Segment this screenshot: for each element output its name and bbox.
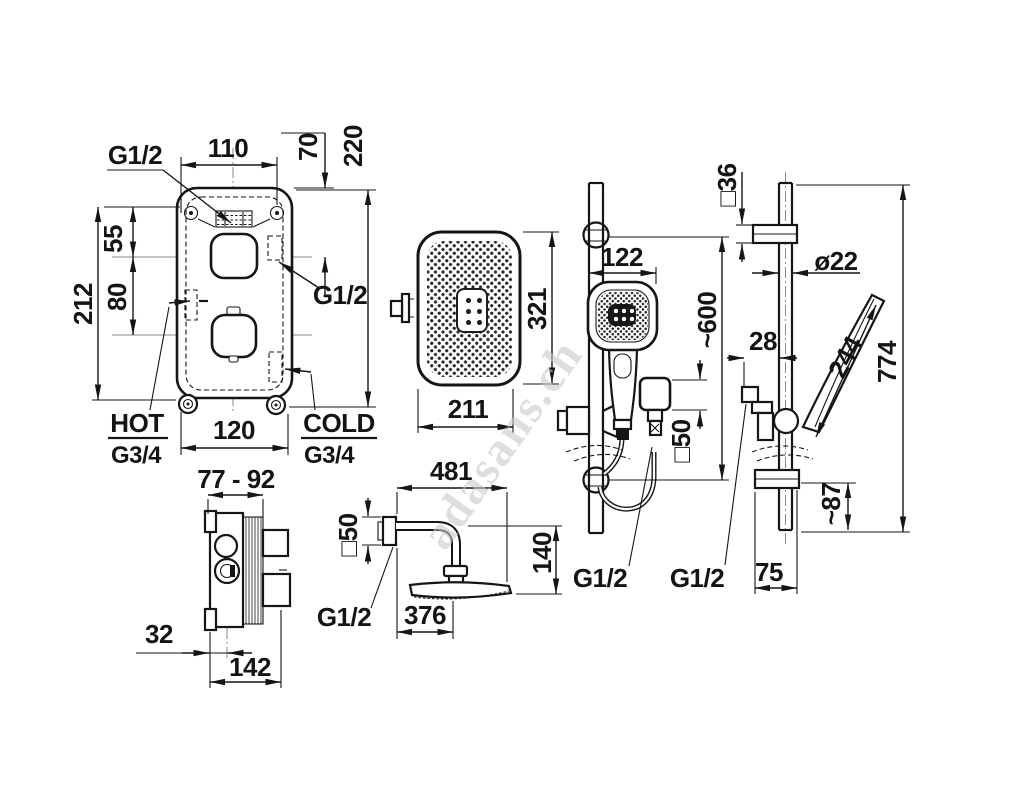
cold-thread-label: G3/4: [304, 444, 354, 468]
dim-220-label: 220: [340, 125, 366, 167]
dim-77-92-label: 77 - 92: [197, 466, 274, 492]
dim-sq36-label: □36: [714, 163, 740, 206]
dim-600-label: ~600: [694, 292, 720, 349]
dim-55-label: 55: [100, 225, 126, 253]
dim-28-label: 28: [749, 328, 777, 354]
dim-211-label: 211: [448, 396, 488, 422]
dim-sq50-arm-label: □50: [335, 513, 361, 556]
dim-774-label: 774: [874, 341, 900, 383]
slide-rail-side-view: [727, 172, 910, 594]
trim-top-thread-label: G1/2: [108, 142, 162, 168]
dim-75-label: 75: [755, 559, 783, 585]
hose-outlet-thread-label: G1/2: [573, 565, 627, 591]
dim-212-label: 212: [70, 283, 96, 325]
dim-32-label: 32: [145, 621, 173, 647]
dim-sq50-rail-label: □50: [668, 419, 694, 462]
overhead-shower-center-nozzles: [461, 294, 483, 325]
hand-shower-center-nozzles: [611, 307, 635, 323]
slide-rail-front-view: [558, 183, 746, 566]
dim-d22-label: ø22: [814, 248, 857, 274]
dim-376-label: 376: [404, 602, 446, 628]
hot-thread-label: G3/4: [111, 444, 161, 468]
dim-140-label: 140: [529, 532, 555, 574]
dim-321-label: 321: [524, 288, 550, 330]
trim-side-thread-label: G1/2: [313, 282, 367, 308]
dim-481-label: 481: [430, 458, 472, 484]
dim-120-label: 120: [213, 417, 255, 443]
dim-70-label: 70: [295, 133, 321, 161]
dim-80-label: 80: [104, 283, 130, 311]
dim-110-label: 110: [208, 135, 248, 161]
hot-label: HOT: [110, 410, 163, 436]
dim-142-label: 142: [229, 654, 271, 680]
dim-122-label: 122: [601, 244, 643, 270]
dim-87-label: ~87: [818, 483, 844, 526]
arm-thread-label: G1/2: [317, 604, 371, 630]
technical-drawing-shower-set: adasans.ch G1/2 110 70 220 55 80 212 G1/…: [0, 0, 1024, 809]
rail-thread-label: G1/2: [670, 565, 724, 591]
cold-label: COLD: [303, 410, 375, 436]
